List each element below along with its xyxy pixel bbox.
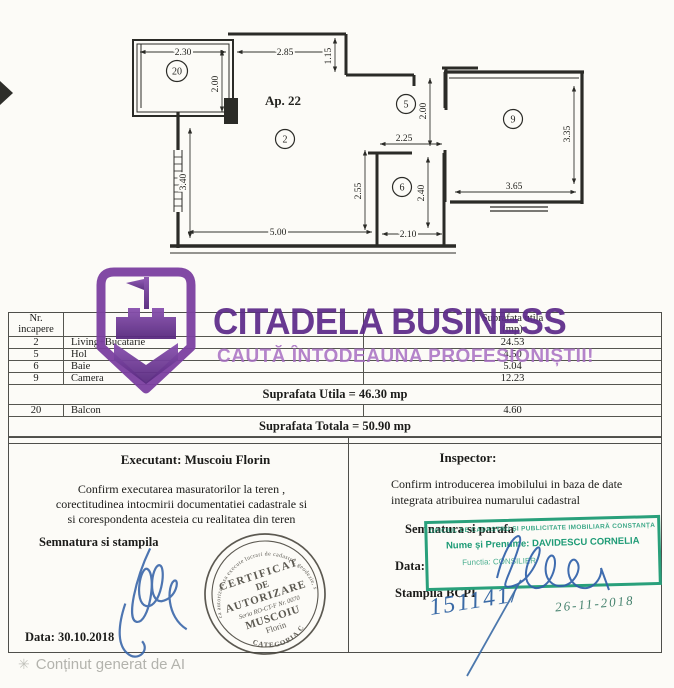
inspector-title: Inspector: <box>349 450 587 466</box>
citadela-shield-logo <box>86 263 206 397</box>
executant-title: Executant: Muscoiu Florin <box>43 452 348 468</box>
green-stamp-office: OFICIUL DE CADASTRU ȘI PUBLICITATE IMOBI… <box>427 522 657 535</box>
room-number-hall: 5 <box>404 100 409 111</box>
watermark-brand-text: CITADELA BUSINESS <box>213 301 566 343</box>
inspector-cell: Inspector: Confirm introducerea imobilul… <box>349 438 661 652</box>
room-number-balcony: 20 <box>172 67 182 78</box>
cell-nr: 6 <box>9 361 64 372</box>
dim-bath-bottom: 2.10 <box>400 230 417 240</box>
svg-text:Persoana fizica autorizata sa: Persoana fizica autorizata sa execute lu… <box>203 538 319 621</box>
cell-nr: 2 <box>9 337 64 348</box>
executant-line2: corectitudinea intocmirii documentatiei … <box>19 497 344 512</box>
dim-bath-top: 2.25 <box>396 134 413 144</box>
executant-line1: Confirm executarea masuratorilor la tere… <box>19 482 344 497</box>
dim-living-top: 2.85 <box>277 48 294 58</box>
suprafata-totala-row: Suprafata Totala = 50.90 mp <box>9 417 661 437</box>
executant-statement: Confirm executarea masuratorilor la tere… <box>19 482 344 527</box>
shield-icon <box>101 272 191 389</box>
dim-bath-right: 2.40 <box>417 184 427 201</box>
ai-content-note: ✳ Conținut generat de AI <box>18 656 185 673</box>
table-row-balcon: 20 Balcon 4.60 <box>9 405 661 417</box>
header-nr-line2: incapere <box>9 325 63 336</box>
stamp-line-florin: Florin <box>264 619 288 635</box>
cadastral-document-page: 2.30 2.00 2.85 1.15 3.40 5.00 2.55 2.25 … <box>0 0 674 688</box>
inspector-date-label: Data: <box>395 559 425 574</box>
dim-living-bottom: 5.00 <box>270 228 287 238</box>
stamp-line-seria: Seria RO-CT-F Nr. 0070 <box>238 594 302 621</box>
executant-signature-label: Semnatura si stampila <box>39 535 158 550</box>
inspector-line1: Confirm introducerea imobilului in baza … <box>391 476 655 492</box>
header-nr-line1: Nr. <box>9 314 63 325</box>
stamp-line-certificat: CERTIFICAT <box>218 556 301 593</box>
asterisk-icon: ✳ <box>18 656 30 673</box>
svg-text:CATEGORIA C: CATEGORIA C <box>250 622 310 656</box>
dimension-lines <box>140 38 576 238</box>
scan-artifact <box>0 81 13 105</box>
dim-entry-step: 1.15 <box>324 47 334 64</box>
cell-name: Balcon <box>64 405 364 416</box>
executant-round-stamp: Persoana fizica autorizata sa execute lu… <box>198 527 332 661</box>
inspector-line2: integrata atribuirea numarului cadastral <box>391 492 655 508</box>
header-nr: Nr. incapere <box>9 313 64 336</box>
green-stamp-function: Functia: CONSILIER <box>428 553 658 568</box>
apartment-label: Ap. 22 <box>265 93 301 108</box>
walls <box>133 34 584 253</box>
executant-cell: Executant: Muscoiu Florin Confirm execut… <box>9 438 349 652</box>
stamp-arc-bottom-text: CATEGORIA C <box>250 622 310 656</box>
cell-nr: 5 <box>9 349 64 360</box>
ai-note-text: Conținut generat de AI <box>36 656 185 673</box>
inspector-statement: Confirm introducerea imobilului in baza … <box>391 476 655 508</box>
stamp-arc-top-text: Persoana fizica autorizata sa execute lu… <box>203 538 319 621</box>
dim-camera-height: 3.35 <box>563 125 573 142</box>
stamp-line-autorizare: AUTORIZARE <box>224 578 308 615</box>
dim-balcony-width: 2.30 <box>175 48 192 58</box>
dim-camera-width: 3.65 <box>506 182 523 192</box>
room-number-living: 2 <box>283 135 288 146</box>
room-number-camera: 9 <box>511 115 516 126</box>
stamp-line-muscoiu: MUSCOIU <box>244 603 302 632</box>
stamp-line-de: DE <box>255 580 271 594</box>
signatures-section: Executant: Muscoiu Florin Confirm execut… <box>8 437 662 653</box>
dim-hall-height: 2.00 <box>419 102 429 119</box>
dim-living-right: 2.55 <box>354 182 364 199</box>
dim-living-left: 3.40 <box>179 173 189 190</box>
dim-balcony-depth: 2.00 <box>211 75 221 92</box>
executant-date: Data: 30.10.2018 <box>25 630 114 645</box>
green-stamp-name: Nume și Prenume: DAVIDESCU CORNELIA <box>428 535 658 552</box>
watermark-tagline: CAUTĂ ÎNTODEAUNA PROFESIONIȘTII! <box>217 346 594 368</box>
inspector-handwritten-date: 26-11-2018 <box>554 593 635 616</box>
inspector-green-stamp: OFICIUL DE CADASTRU ȘI PUBLICITATE IMOBI… <box>424 515 662 591</box>
floor-plan: 2.30 2.00 2.85 1.15 3.40 5.00 2.55 2.25 … <box>0 0 674 300</box>
cell-nr: 9 <box>9 373 64 384</box>
room-number-bath: 6 <box>400 183 405 194</box>
executant-handwritten-signature <box>101 540 213 658</box>
cell-area: 4.60 <box>364 405 661 416</box>
cell-area: 12.23 <box>364 373 661 384</box>
executant-line3: si corespondenta acesteia cu realitatea … <box>19 512 344 527</box>
cell-nr: 20 <box>9 405 64 416</box>
